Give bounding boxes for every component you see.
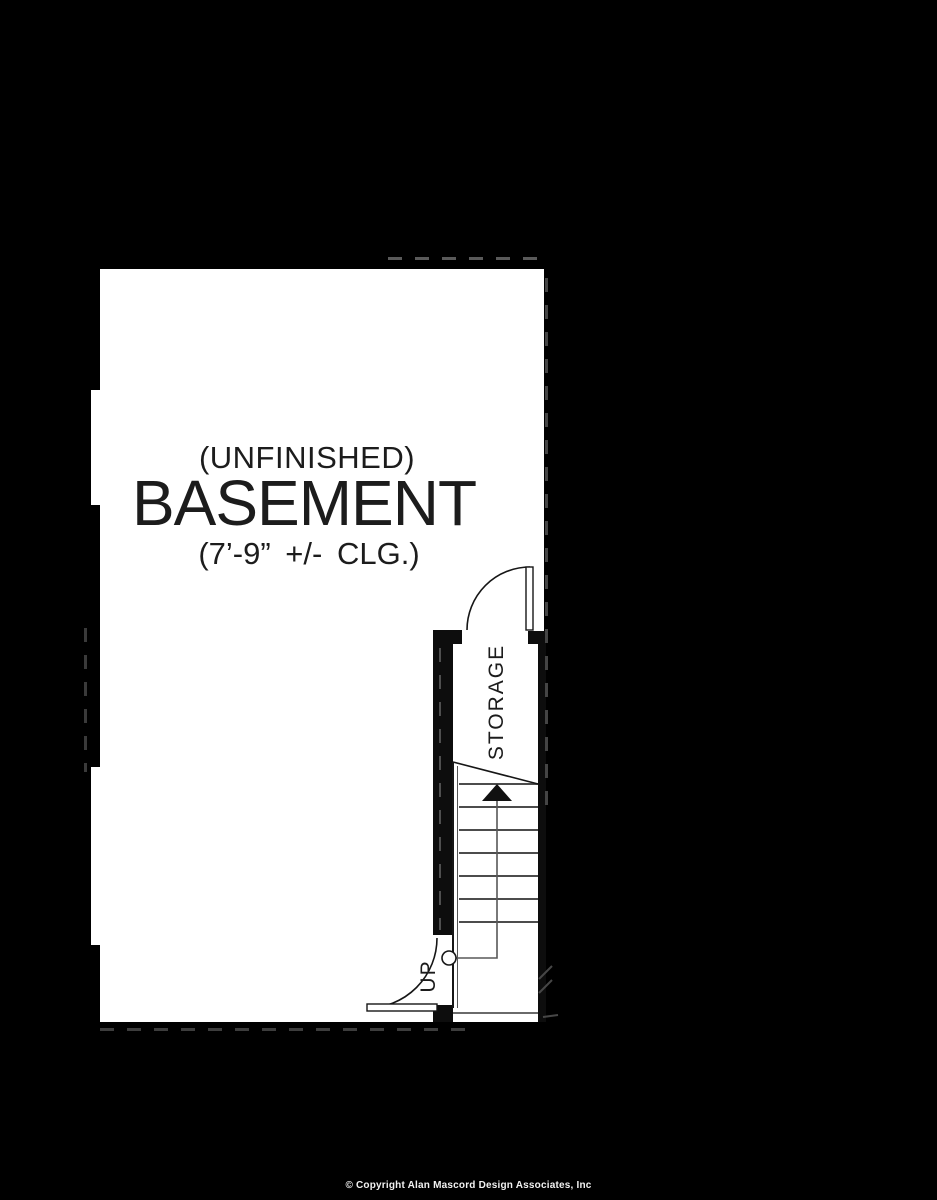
storage-door-swing-arc [467, 567, 530, 630]
copyright-notice: © Copyright Alan Mascord Design Associat… [0, 1180, 937, 1191]
plan-linework [0, 0, 937, 1200]
right-wall-break-marks [539, 966, 552, 993]
up-direction-arrow-icon [482, 784, 512, 801]
storage-room-label: STORAGE [485, 622, 509, 782]
stair-walk-line [456, 800, 497, 958]
walk-line-start-marker [442, 951, 456, 965]
ceiling-height-label: (7’-9” +/- CLG.) [109, 536, 509, 572]
bottom-right-dash-mark [543, 1015, 558, 1017]
floor-plan-canvas: (UNFINISHED) BASEMENT (7’-9” +/- CLG.) S… [0, 0, 937, 1200]
storage-door-leaf [526, 567, 533, 630]
stairs-up-label: UP [417, 946, 441, 1006]
room-name-label: BASEMENT [104, 466, 504, 540]
